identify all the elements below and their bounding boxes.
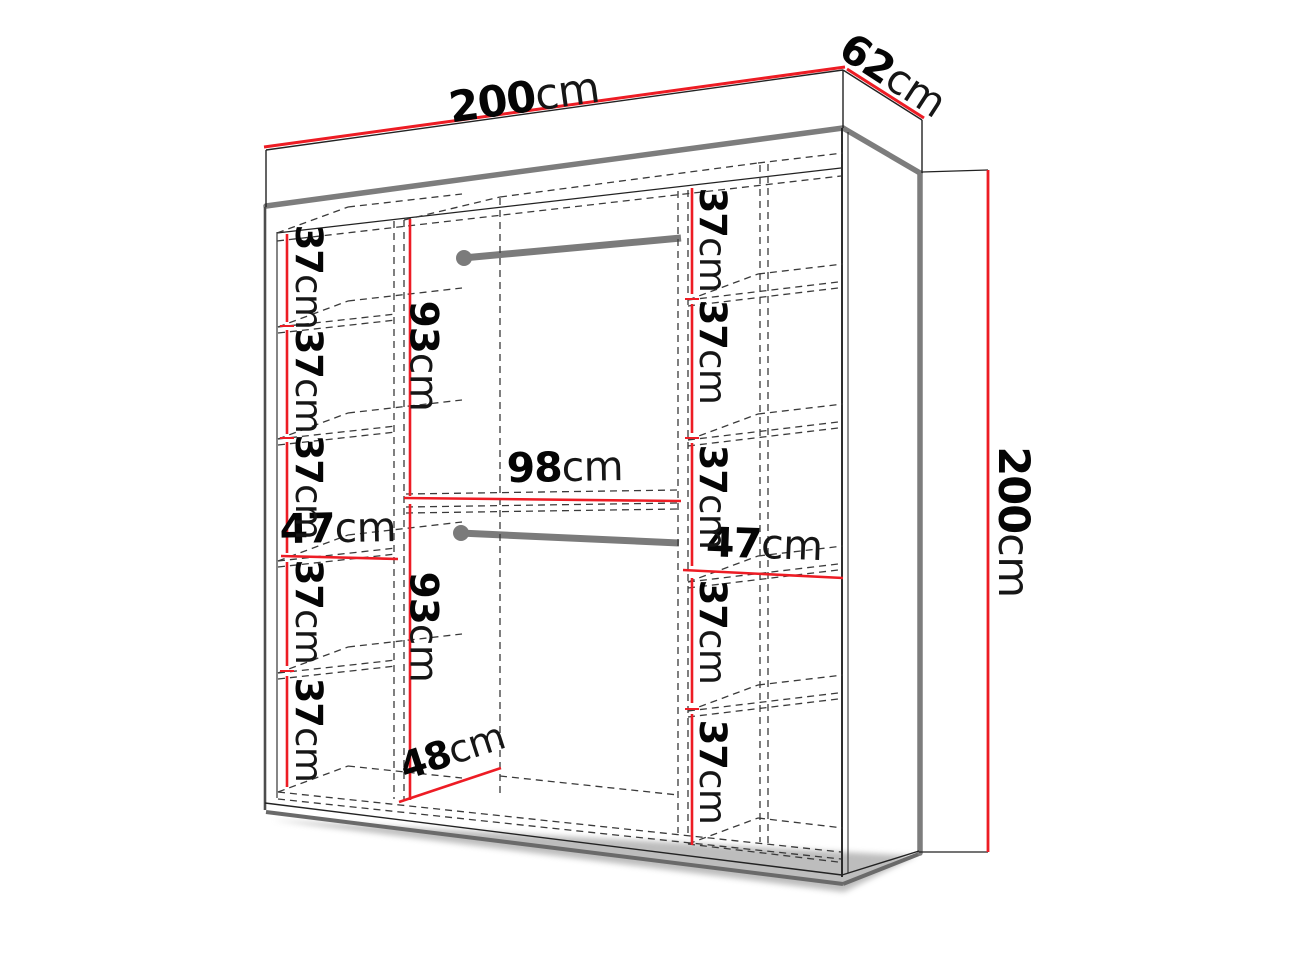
label-top-width: 200cm — [446, 63, 603, 134]
label-hang-lower: 93cm — [400, 572, 445, 683]
label-left-shelf-5: 37cm — [287, 678, 330, 783]
label-right-shelf-4: 37cm — [691, 580, 734, 685]
rod-end-cap-upper — [456, 250, 472, 266]
label-middle-width: 98cm — [506, 442, 623, 492]
rod-end-cap-lower — [453, 525, 469, 541]
dimension-lines — [264, 67, 988, 852]
dimension-labels: 200cm 62cm 200cm 98cm 93cm 93cm 47cm 47c… — [279, 23, 1038, 824]
label-hang-upper: 93cm — [400, 301, 445, 412]
label-top-depth: 62cm — [831, 23, 955, 127]
label-right-height: 200cm — [988, 446, 1038, 597]
label-left-shelf-1: 37cm — [287, 225, 330, 330]
label-left-shelf-3: 37cm — [287, 435, 330, 540]
label-right-shelf-3: 37cm — [691, 445, 734, 550]
label-left-shelf-4: 37cm — [287, 560, 330, 665]
wardrobe-diagram-canvas: 200cm 62cm 200cm 98cm 93cm 93cm 47cm 47c… — [0, 0, 1292, 969]
label-right-shelf-5: 37cm — [691, 720, 734, 825]
label-left-shelf-2: 37cm — [287, 329, 330, 434]
wardrobe-diagram: 200cm 62cm 200cm 98cm 93cm 93cm 47cm 47c… — [0, 0, 1292, 969]
floor-shadow — [266, 812, 919, 892]
hanging-rods — [453, 238, 681, 543]
label-interior-depth: 48cm — [394, 714, 510, 789]
label-right-shelf-2: 37cm — [691, 300, 734, 405]
label-right-shelf-1: 37cm — [691, 188, 734, 293]
